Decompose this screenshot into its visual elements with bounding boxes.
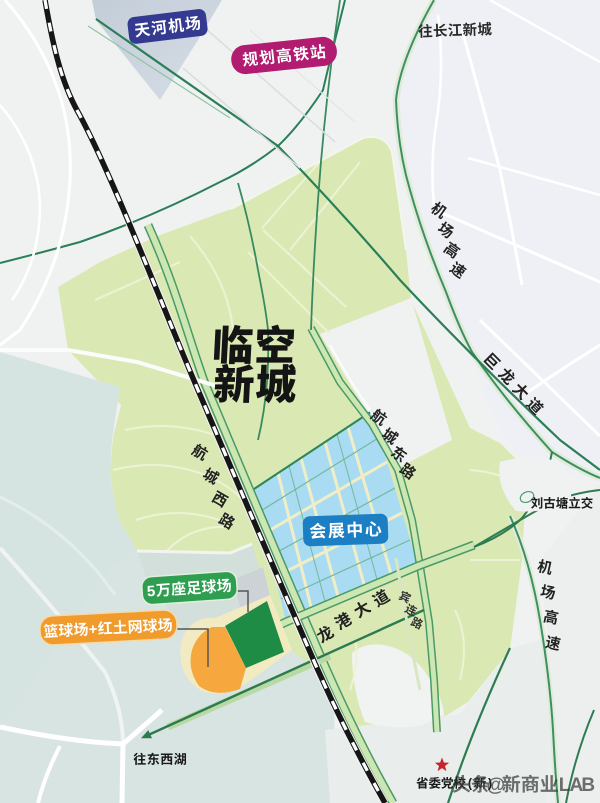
svg-text:@: @ [487,775,506,796]
svg-text:5: 5 [146,583,156,601]
svg-text:B: B [581,775,595,796]
svg-text:+: + [88,621,98,638]
